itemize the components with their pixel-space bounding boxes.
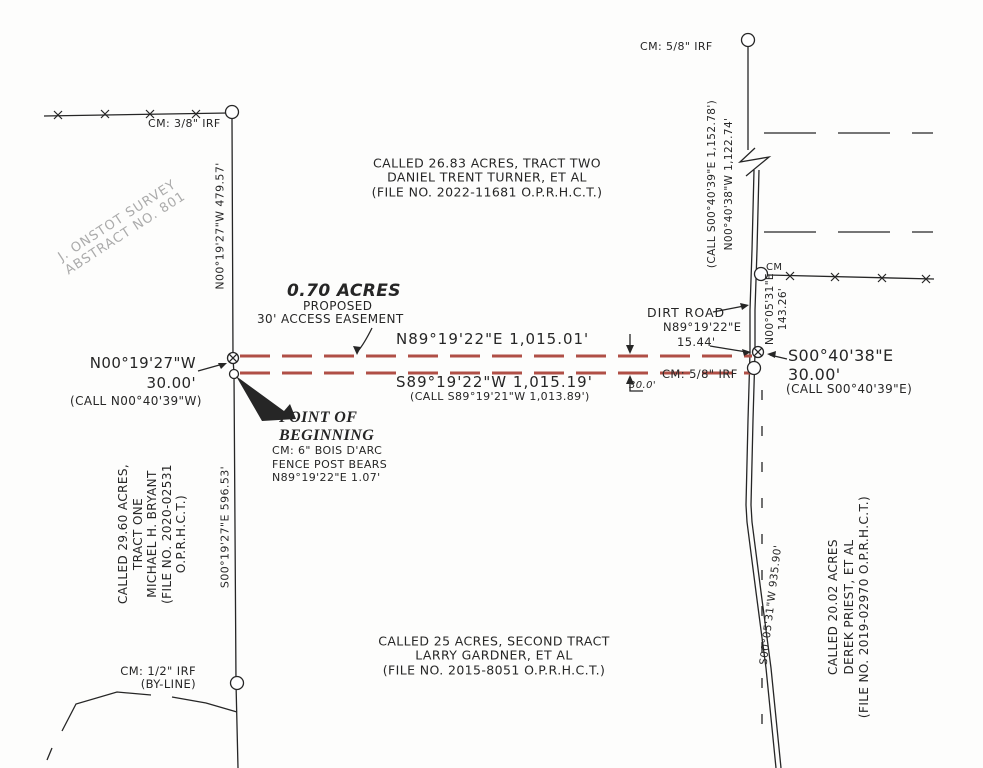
road-tie-bearing: N89°19'22"E	[663, 321, 741, 334]
east-monument-circle	[748, 362, 761, 375]
monument-circle-sw	[231, 677, 244, 690]
dirt-road-east-edge	[751, 170, 781, 768]
east-tie-bearing: S00°40'38"E	[788, 347, 894, 365]
west-tie-distance: 30.00'	[70, 375, 196, 392]
monument-circle-ne	[742, 34, 755, 47]
west-tie-bearing: N00°19'27"W	[70, 355, 196, 372]
survey-plat-page: CM: 3/8" IRF J. ONSTOT SURVEY ABSTRACT N…	[0, 0, 983, 768]
monument-circle-nw	[226, 106, 239, 119]
west-line-south-bearing: S00°19'27"E 596.53'	[220, 466, 233, 588]
road-tie-leader	[710, 346, 747, 352]
fence-x-mark	[54, 111, 62, 119]
east-circled-x-marker	[753, 347, 764, 358]
parcel-priest-label: CALLED 20.02 ACRES DEREK PRIEST, ET AL (…	[826, 496, 873, 718]
west-line-north-bearing: N00°19'27"W 479.57'	[215, 162, 228, 289]
east-mid-monument-label: CM	[766, 262, 782, 274]
road-tie-distance: 15.44'	[677, 336, 715, 349]
easement-north-bearing: N89°19'22"E 1,015.01'	[396, 331, 589, 348]
pob-label: POINT OF BEGINNING	[279, 409, 374, 446]
west-tie-arrowhead	[218, 363, 227, 369]
easement-south-bearing: S89°19'22"W 1,015.19'	[396, 374, 593, 391]
sw-monument-label: CM: 1/2" IRF (BY-LINE)	[100, 665, 196, 691]
east-tie-arrowhead	[767, 351, 776, 358]
parcel-gardner-label: CALLED 25 ACRES, SECOND TRACT LARRY GARD…	[378, 634, 610, 677]
parcel-bryant-label: CALLED 29.60 ACRES, TRACT ONE MICHAEL H.…	[116, 464, 189, 604]
easement-width-label: 30.0'	[629, 380, 656, 392]
northwest-fence-line	[44, 113, 228, 116]
east-monument-label: CM: 5/8" IRF	[662, 368, 738, 381]
southwest-by-line	[47, 692, 237, 760]
easement-leader-arrowhead	[353, 346, 361, 355]
east-tie-call: (CALL S00°40'39"E)	[786, 383, 912, 397]
fence-x-mark	[101, 110, 109, 118]
west-tie-call: (CALL N00°40'39"W)	[70, 395, 196, 409]
dirt-road-arrowhead	[740, 303, 749, 310]
pob-monument-note: CM: 6" BOIS D'ARC FENCE POST BEARS N89°1…	[272, 444, 387, 485]
ne-monument-label: CM: 5/8" IRF	[640, 41, 713, 54]
easement-south-call: (CALL S89°19'21"W 1,013.89')	[410, 391, 590, 404]
east-line-mid-bearing: N00°05'31"E 143.26'	[764, 273, 790, 345]
nw-monument-label: CM: 3/8" IRF	[148, 118, 221, 131]
easement-name-label: 30' ACCESS EASEMENT	[257, 313, 404, 327]
east-line-north-bearings: (CALL S00°40'39"E 1,152.78') N00°40'38"W…	[704, 100, 738, 268]
dirt-road-label: DIRT ROAD	[647, 306, 725, 320]
pob-circled-x-marker	[228, 353, 239, 364]
dimension-arrow-top	[626, 345, 634, 354]
parcel-turner-label: CALLED 26.83 ACRES, TRACT TWO DANIEL TRE…	[372, 156, 603, 199]
west-boundary-line	[232, 119, 238, 768]
